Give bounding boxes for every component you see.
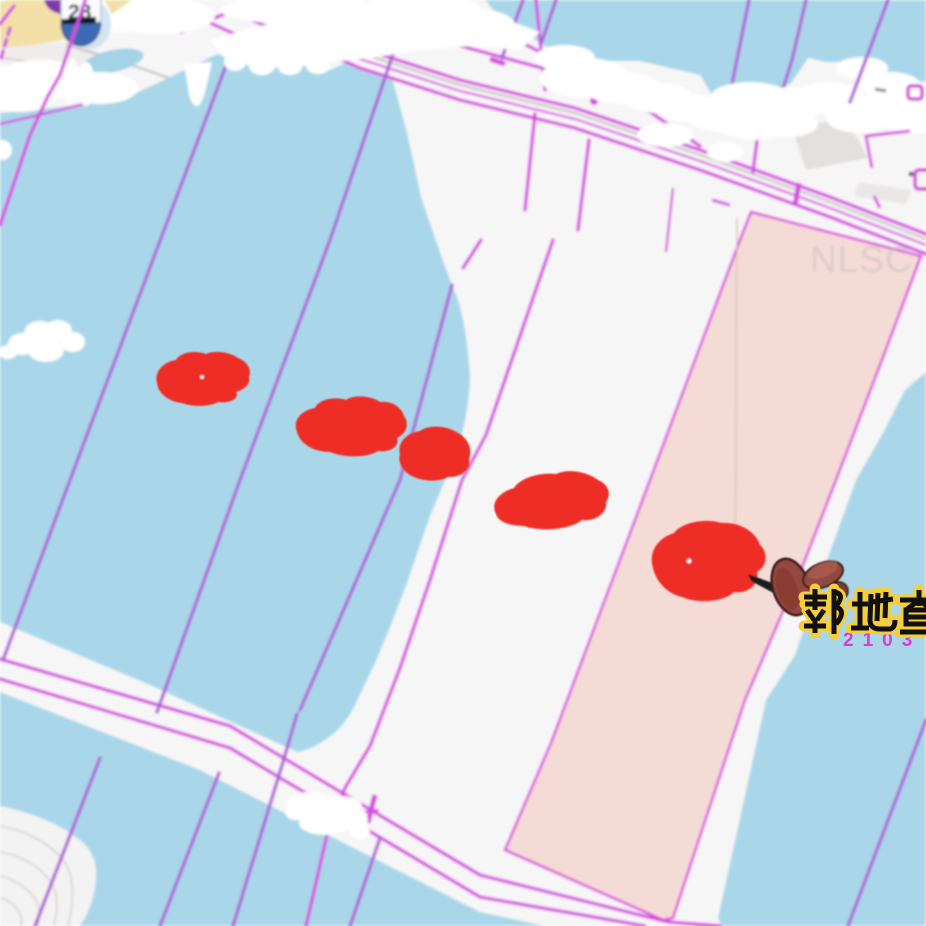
svg-text:NLSC 2: NLSC 2 [810,239,926,280]
